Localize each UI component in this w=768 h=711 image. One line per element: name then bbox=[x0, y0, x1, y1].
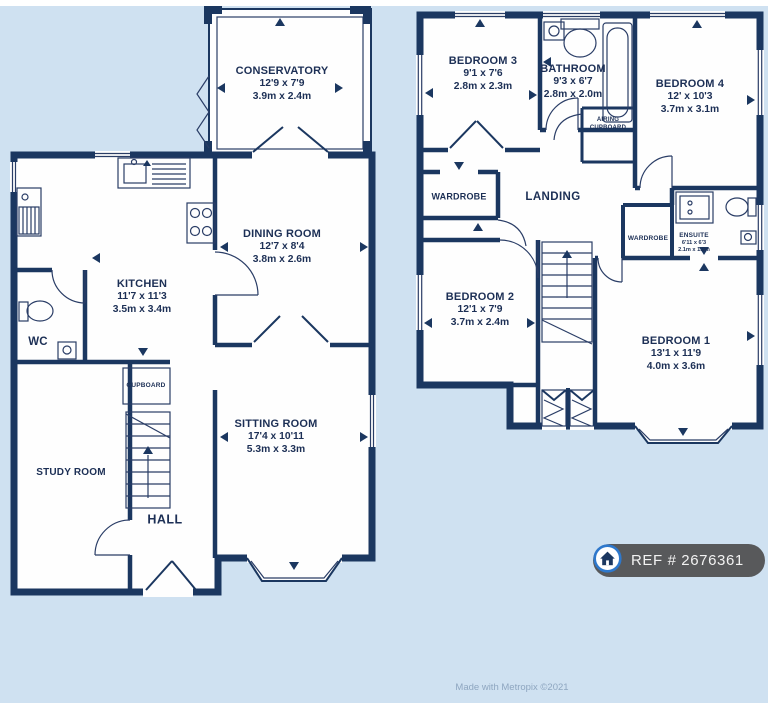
room-name: BEDROOM 4 bbox=[656, 78, 724, 91]
room-dims-metric: 3.9m x 2.4m bbox=[236, 91, 329, 104]
room-label-sitting-room: SITTING ROOM 17'4 x 10'11 5.3m x 3.3m bbox=[234, 418, 317, 457]
top-margin bbox=[0, 0, 768, 6]
room-label-airing-cupboard: AIRING CUPBOARD bbox=[585, 117, 631, 133]
ref-badge: REF # 2676361 bbox=[593, 544, 765, 577]
bottom-margin bbox=[0, 703, 768, 711]
room-label-wardrobe-left: WARDROBE bbox=[431, 192, 486, 203]
room-dims-imperial: 6'11 x 6'3 bbox=[678, 240, 710, 247]
room-dims-metric: 2.1m x 1.9m bbox=[678, 247, 710, 254]
room-name: HALL bbox=[147, 512, 182, 527]
room-dims-imperial: 12' x 10'3 bbox=[656, 91, 724, 104]
room-name: KITCHEN bbox=[113, 278, 171, 291]
room-label-cupboard: CUPBOARD bbox=[126, 382, 165, 390]
room-name: BEDROOM 2 bbox=[446, 291, 514, 304]
room-label-study-room: STUDY ROOM bbox=[36, 467, 106, 479]
room-dims-metric: 2.8m x 2.0m bbox=[540, 89, 606, 102]
room-dims-metric: 4.0m x 3.6m bbox=[642, 361, 710, 374]
room-name: BEDROOM 1 bbox=[642, 335, 710, 348]
room-dims-imperial: 12'1 x 7'9 bbox=[446, 304, 514, 317]
room-dims-metric: 3.5m x 3.4m bbox=[113, 304, 171, 317]
room-dims-metric: 5.3m x 3.3m bbox=[234, 444, 317, 457]
room-label-hall: HALL bbox=[147, 512, 182, 527]
metropix-credit: Made with Metropix ©2021 bbox=[455, 682, 568, 693]
room-name: BATHROOM bbox=[540, 63, 606, 76]
room-dims-imperial: 17'4 x 10'11 bbox=[234, 431, 317, 444]
room-name: ENSUITE bbox=[678, 232, 710, 240]
room-name: WC bbox=[28, 335, 48, 349]
room-name: BEDROOM 3 bbox=[449, 55, 517, 68]
room-label-ensuite: ENSUITE 6'11 x 6'3 2.1m x 1.9m bbox=[678, 232, 710, 254]
room-name: CUPBOARD bbox=[126, 382, 165, 390]
room-label-dining-room: DINING ROOM 12'7 x 8'4 3.8m x 2.6m bbox=[243, 228, 321, 267]
room-name: DINING ROOM bbox=[243, 228, 321, 241]
room-name: AIRING CUPBOARD bbox=[585, 117, 631, 133]
room-dims-metric: 3.8m x 2.6m bbox=[243, 254, 321, 267]
room-name: WARDROBE bbox=[431, 192, 486, 203]
room-dims-imperial: 12'7 x 8'4 bbox=[243, 241, 321, 254]
room-dims-metric: 3.7m x 3.1m bbox=[656, 104, 724, 117]
room-dims-metric: 3.7m x 2.4m bbox=[446, 317, 514, 330]
room-label-bedroom1: BEDROOM 1 13'1 x 11'9 4.0m x 3.6m bbox=[642, 335, 710, 374]
room-label-kitchen: KITCHEN 11'7 x 11'3 3.5m x 3.4m bbox=[113, 278, 171, 317]
metropix-house-icon bbox=[593, 544, 622, 573]
room-label-conservatory: CONSERVATORY 12'9 x 7'9 3.9m x 2.4m bbox=[236, 65, 329, 104]
room-label-wardrobe-right: WARDROBE bbox=[628, 235, 668, 243]
room-dims-imperial: 9'1 x 7'6 bbox=[449, 68, 517, 81]
room-label-bedroom2: BEDROOM 2 12'1 x 7'9 3.7m x 2.4m bbox=[446, 291, 514, 330]
room-name: STUDY ROOM bbox=[36, 467, 106, 479]
room-label-bedroom3: BEDROOM 3 9'1 x 7'6 2.8m x 2.3m bbox=[449, 55, 517, 94]
room-label-landing: LANDING bbox=[525, 190, 580, 204]
room-dims-imperial: 12'9 x 7'9 bbox=[236, 78, 329, 91]
room-name: SITTING ROOM bbox=[234, 418, 317, 431]
floorplan-canvas: CONSERVATORY 12'9 x 7'9 3.9m x 2.4m DINI… bbox=[0, 0, 768, 711]
room-name: CONSERVATORY bbox=[236, 65, 329, 78]
room-name: WARDROBE bbox=[628, 235, 668, 243]
room-label-bathroom: BATHROOM 9'3 x 6'7 2.8m x 2.0m bbox=[540, 63, 606, 102]
room-label-bedroom4: BEDROOM 4 12' x 10'3 3.7m x 3.1m bbox=[656, 78, 724, 117]
room-name: LANDING bbox=[525, 190, 580, 204]
room-dims-imperial: 11'7 x 11'3 bbox=[113, 291, 171, 304]
room-dims-imperial: 13'1 x 11'9 bbox=[642, 348, 710, 361]
room-dims-metric: 2.8m x 2.3m bbox=[449, 81, 517, 94]
ref-number: REF # 2676361 bbox=[631, 552, 744, 569]
room-dims-imperial: 9'3 x 6'7 bbox=[540, 76, 606, 89]
room-label-wc: WC bbox=[28, 335, 48, 349]
